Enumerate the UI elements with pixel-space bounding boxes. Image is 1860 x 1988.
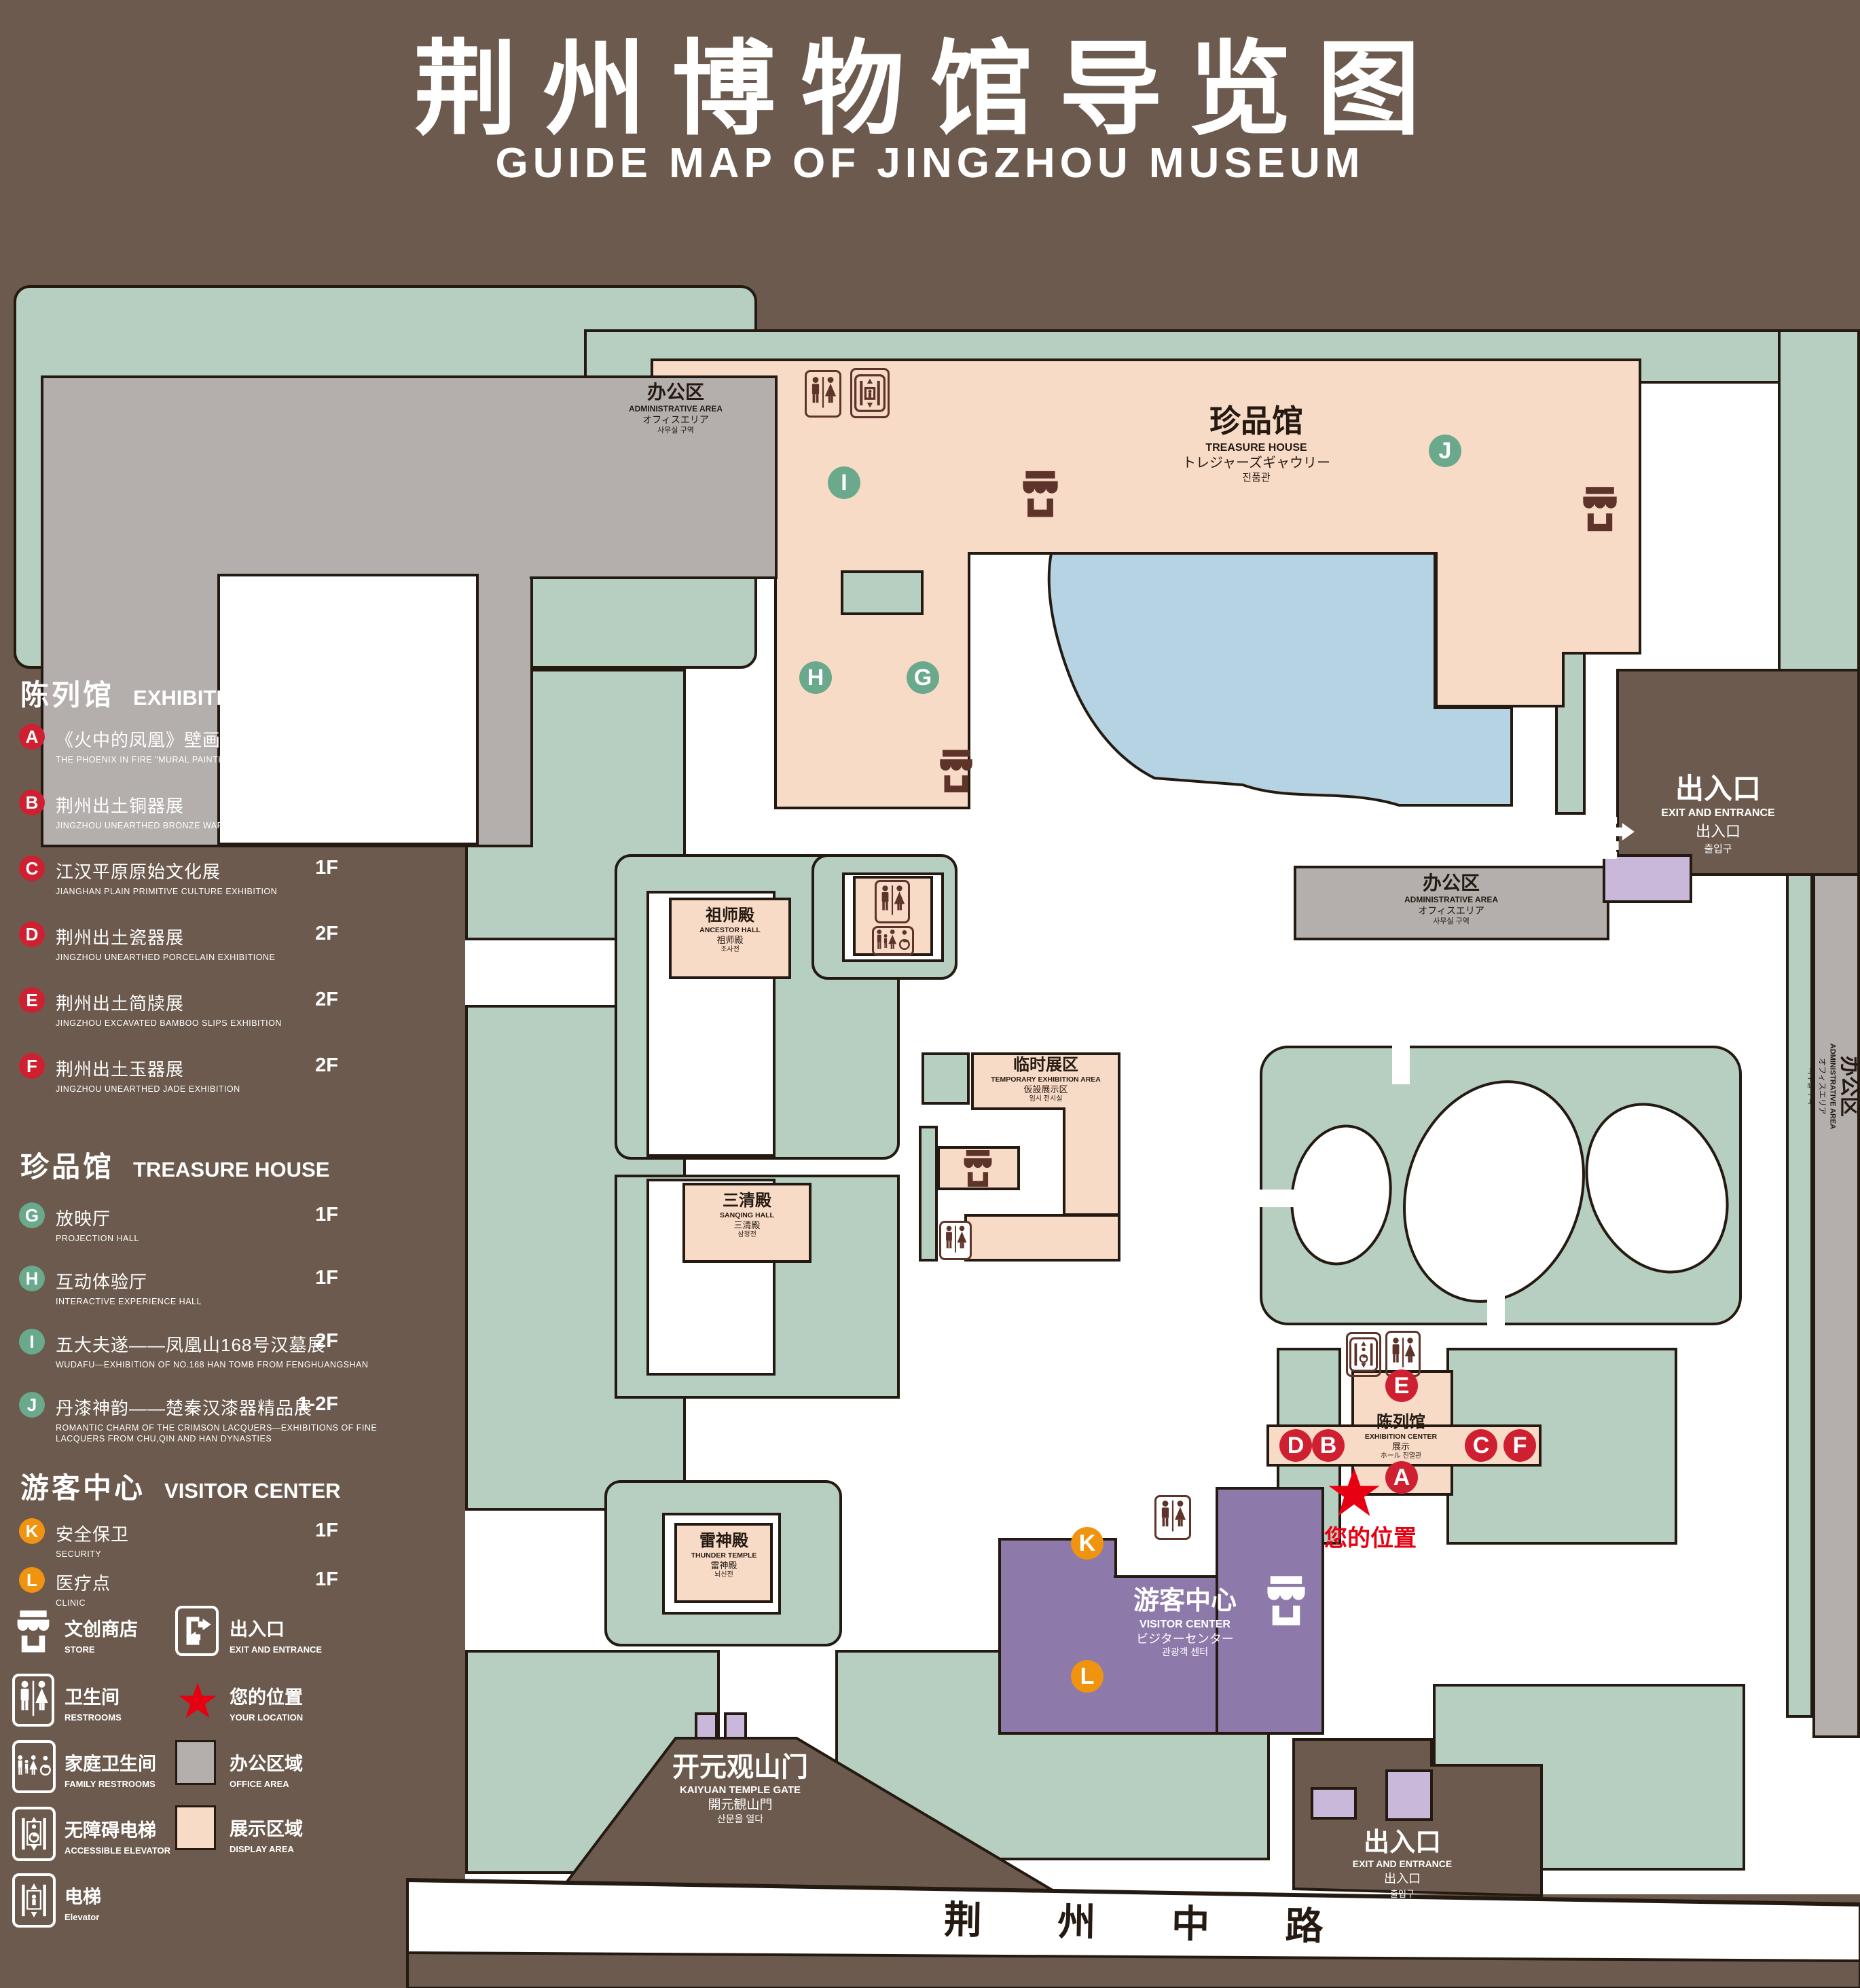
restroom-icon [12,1674,54,1727]
legend-marker-K: K [19,1518,45,1544]
temporary-exhibition-label: 临时展区 TEMPORARY EXHIBITION AREA 仮設展示区 임시 … [968,1055,1124,1104]
accessible-elevator-icon [1346,1332,1381,1377]
gate-pad-left [695,1712,718,1739]
admin-far-right-label: 办公区 ADMINISTRATIVE AREA オフィスエリア 사무실 구역 [1806,1044,1860,1130]
top-right-exit-label: 出入口 EXIT AND ENTRANCE 出入口 출입구 [1609,766,1827,855]
map-marker-H: H [799,661,832,694]
your-location-star-icon [1328,1468,1381,1518]
legend-key-exit: 出入口EXIT AND ENTRANCE [230,1615,322,1655]
legend-key-store: 文创商店STORE [65,1615,138,1655]
legend-item-A: A 《火中的凤凰》壁画 THE PHOENIX IN FIRE "MURAL P… [19,726,426,765]
exit-entrance-icon [1589,801,1638,875]
sanqing-hall-label: 三清殿 SANQING HALL 三清殿 삼청전 [686,1191,808,1240]
map-marker-B: B [1312,1429,1345,1462]
legend-marker-C: C [19,855,45,881]
exhibition-center-label: 陈列馆 EXHIBITION CENTER 展示 ホール 진열관 [1326,1412,1476,1461]
legend-marker-H: H [19,1266,45,1291]
kaiyuan-gate-label: 开元观山门 KAIYUAN TEMPLE GATE 開元観山門 산문을 열다 [598,1750,883,1825]
garden-pond-right [1561,1082,1753,1295]
store-icon [1022,471,1059,519]
legend-marker-D: D [19,921,45,947]
map-marker-E: E [1385,1369,1418,1402]
elevator-icon [12,1873,56,1928]
legend-item-F: F 荆州出土玉器展 JINGZHOU UNEARTHED JADE EXHIBI… [19,1056,426,1094]
your-location-star-icon [178,1682,217,1720]
legend-item-K: K 安全保卫 SECURITY 1F [19,1521,426,1560]
legend-sidebar: 陈列馆EXHIBITION CENTER A 《火中的凤凰》壁画 THE PHO… [0,652,448,1988]
legend-item-H: H 互动体验厅 INTERACTIVE EXPERIENCE HALL 1F [19,1268,426,1307]
garden-path-west [1258,1190,1298,1207]
family-restroom-icon [12,1740,56,1793]
garden-path-north [1392,1044,1410,1084]
temporary-exhibition-column [1063,1107,1120,1216]
temporary-exhibition-bottom [964,1214,1120,1262]
map-marker-D: D [1279,1429,1312,1462]
legend-marker-A: A [19,724,45,750]
thunder-temple-label: 雷神殿 THUNDER TEMPLE 雷神殿 뇌신전 [670,1531,778,1580]
legend-marker-I: I [19,1329,45,1355]
legend-key-family-restrooms: 家庭卫生间FAMILY RESTROOMS [65,1749,156,1789]
legend-item-C: C 江汉平原原始文化展 JIANGHAN PLAIN PRIMITIVE CUL… [19,858,426,897]
accessible-elevator-icon [12,1807,56,1861]
map-marker-L: L [1071,1660,1104,1693]
legend-item-J: J 丹漆神韵——楚秦汉漆器精品展 ROMANTIC CHARM OF THE C… [19,1395,426,1445]
legend-section-visitor: 游客中心VISITOR CENTER [20,1465,341,1507]
store-icon [961,1150,995,1188]
elevator-icon [850,368,890,418]
display-area-swatch [175,1805,216,1850]
restroom-icon [939,1221,972,1260]
family-restroom-icon [872,926,914,956]
treasure-house-label: 珍品馆 TREASURE HOUSE トレジャーズギャウリー 진품관 [1087,402,1426,484]
bottom-right-exit-label: 出入口 EXIT AND ENTRANCE 出入口 출입구 [1300,1821,1504,1900]
legend-marker-F: F [19,1053,45,1079]
legend-item-E: E 荆州出土简牍展 JINGZHOU EXCAVATED BAMBOO SLIP… [19,990,426,1029]
admin-top-left-label: 办公区 ADMINISTRATIVE AREA オフィスエリア 사무실 구역 [553,380,798,435]
legend-item-B: B 荆州出土铜器展 JINGZHOU UNEARTHED BRONZE WARE… [19,792,426,831]
store-icon [939,749,973,795]
garden-path-south [1487,1290,1505,1327]
map-marker-K: K [1071,1527,1104,1560]
map-marker-C: C [1465,1429,1497,1462]
legend-key-accessible-elevator: 无障碍电梯ACCESSIBLE ELEVATOR [65,1816,170,1856]
legend-marker-L: L [19,1567,45,1593]
legend-key-elevator: 电梯Elevator [65,1882,101,1922]
restroom-icon [875,880,910,923]
legend-section-exhibition: 陈列馆EXHIBITION CENTER [20,672,346,714]
legend-key-your-location: 您的位置YOUR LOCATION [230,1682,303,1723]
exit-entrance-icon [175,1606,219,1656]
map-marker-A: A [1385,1461,1418,1494]
legend-key-display-area: 展示区域DISPLAY AREA [230,1814,303,1854]
store-icon [12,1610,54,1654]
legend-key-restrooms: 卫生间RESTROOMS [65,1682,122,1723]
street-name: 荆 州 中 路 [943,1890,1356,1952]
bottom-exit-pad-left [1311,1787,1357,1820]
lake-edge-lawn [842,572,922,614]
your-location-text: 您的位置 [1324,1520,1417,1553]
legend-marker-G: G [19,1202,45,1228]
map-marker-G: G [907,661,939,694]
legend-item-I: I 五大夫遂——凤凰山168号汉墓展 WUDAFU—EXHIBITION OF … [19,1331,426,1370]
legend-item-G: G 放映厅 PROJECTION HALL 1F [19,1205,426,1244]
legend-marker-B: B [19,790,45,815]
gate-pad-right [724,1712,747,1739]
restroom-icon [1154,1495,1191,1540]
office-area-swatch [175,1740,216,1785]
legend-item-D: D 荆州出土瓷器展 JINGZHOU UNEARTHED PORCELAIN E… [19,924,426,963]
map-marker-I: I [828,466,860,499]
legend-key-office-area: 办公区域OFFICE AREA [230,1749,303,1789]
visitor-center-label: 游客中心 VISITOR CENTER ビジターセンター 관광객 센터 [1073,1585,1297,1659]
store-icon [1266,1575,1306,1628]
admin-right-label: 办公区 ADMINISTRATIVE AREA オフィスエリア 사무실 구역 [1322,871,1580,926]
legend-item-L: L 医疗点 CLINIC 1F [19,1570,426,1608]
restroom-icon [805,370,841,418]
admin-far-right-strip [1812,842,1860,1738]
legend-marker-J: J [19,1392,45,1418]
map-marker-J: J [1429,435,1461,467]
store-icon [1582,486,1618,534]
garden-pond-center [1376,1059,1611,1325]
legend-section-treasure: 珍品馆TREASURE HOUSE [20,1144,329,1185]
garden-pond-left [1283,1120,1400,1270]
map-marker-F: F [1503,1429,1536,1462]
ancestor-hall-label: 祖师殿 ANCESTOR HALL 祖师殿 조사전 [669,906,791,955]
legend-marker-E: E [19,987,45,1013]
bottom-exit-pad-right [1385,1769,1433,1821]
